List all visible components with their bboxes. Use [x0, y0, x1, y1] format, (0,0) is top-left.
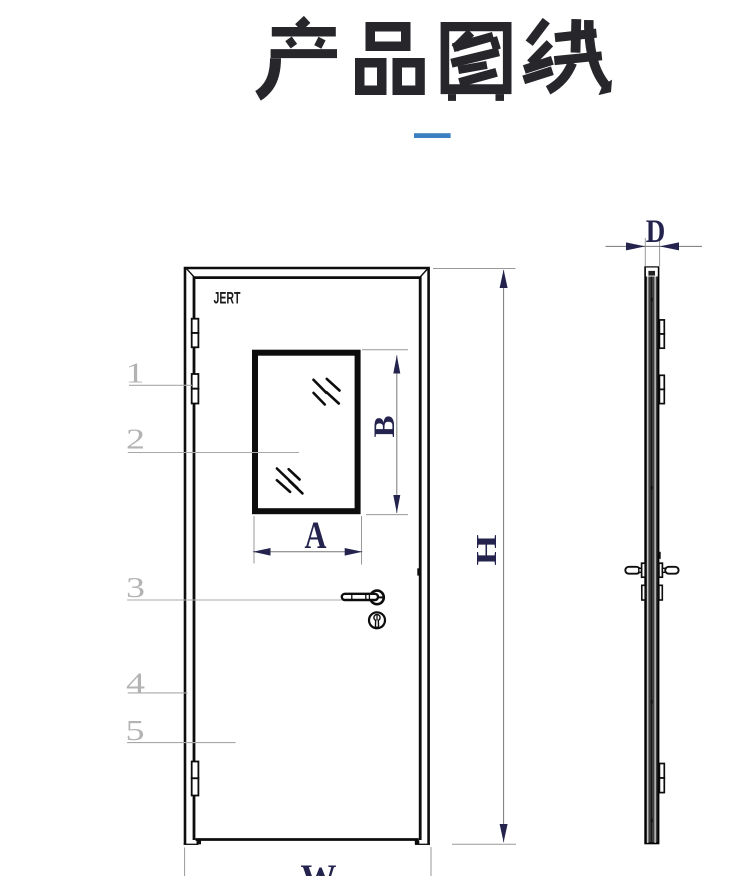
svg-text:2: 2	[126, 424, 145, 456]
svg-text:A: A	[305, 514, 327, 557]
svg-text:H: H	[472, 534, 503, 565]
svg-text:3: 3	[126, 572, 145, 604]
svg-text:4: 4	[126, 668, 146, 700]
svg-text:D: D	[646, 214, 666, 250]
svg-text:W: W	[301, 857, 337, 876]
svg-text:1: 1	[126, 358, 145, 390]
svg-text:5: 5	[126, 715, 145, 747]
svg-text:B: B	[368, 416, 401, 438]
svg-text:JERT: JERT	[214, 290, 241, 308]
